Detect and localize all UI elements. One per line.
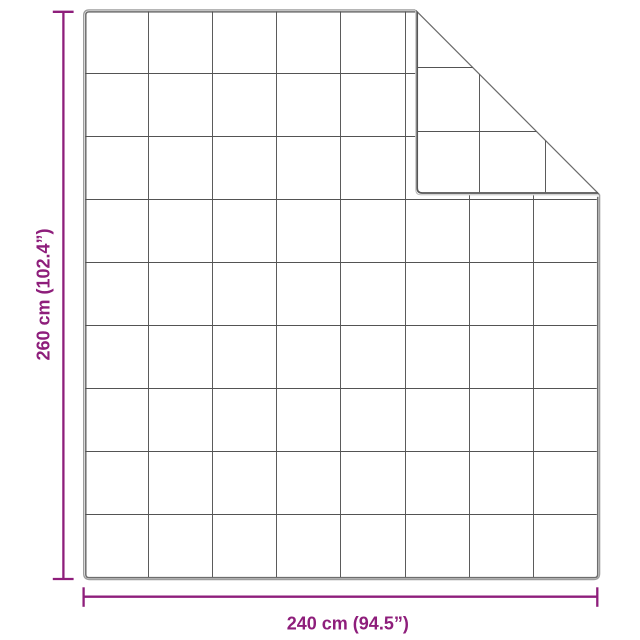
svg-text:240 cm (94.5”): 240 cm (94.5”) (287, 614, 409, 634)
svg-text:260 cm (102.4”): 260 cm (102.4”) (33, 228, 53, 360)
